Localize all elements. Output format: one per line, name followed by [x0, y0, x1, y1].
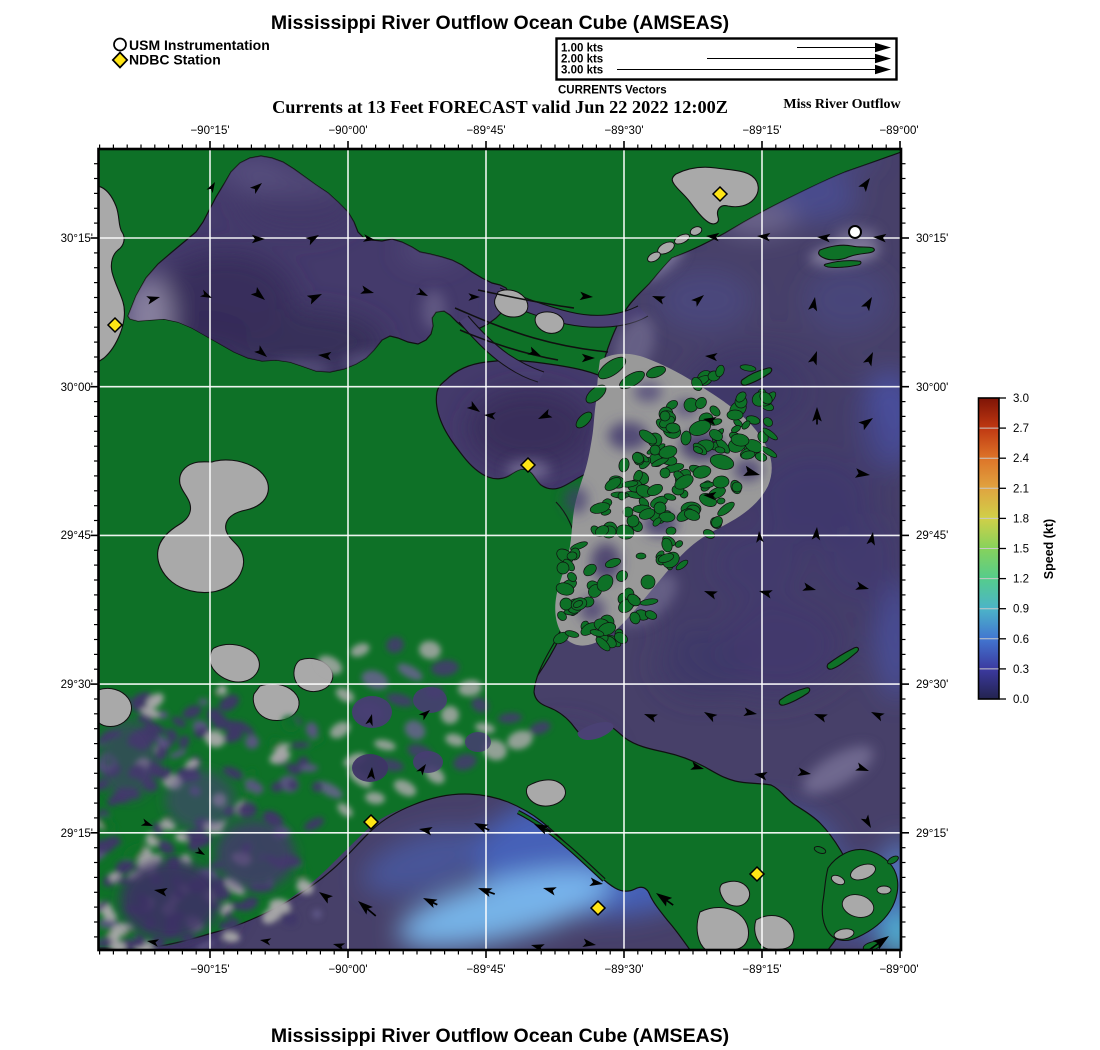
svg-text:0.0: 0.0	[1013, 694, 1029, 706]
svg-text:−89°15': −89°15'	[742, 125, 781, 137]
svg-text:CURRENTS Vectors: CURRENTS Vectors	[558, 85, 667, 97]
svg-text:30°15': 30°15'	[916, 233, 948, 245]
svg-text:30°15': 30°15'	[61, 233, 93, 245]
svg-text:−89°00': −89°00'	[879, 125, 918, 137]
svg-text:29°30': 29°30'	[61, 679, 93, 691]
svg-text:Currents at 13 Feet FORECAST v: Currents at 13 Feet FORECAST valid Jun 2…	[272, 97, 728, 117]
svg-text:Mississippi River Outflow Ocea: Mississippi River Outflow Ocean Cube (AM…	[271, 1025, 729, 1047]
svg-text:−90°00': −90°00'	[328, 125, 367, 137]
svg-text:−89°45': −89°45'	[466, 125, 505, 137]
svg-text:30°00': 30°00'	[61, 382, 93, 394]
svg-text:−89°30': −89°30'	[604, 964, 643, 976]
svg-text:1.5: 1.5	[1013, 544, 1029, 556]
svg-text:0.9: 0.9	[1013, 604, 1029, 616]
svg-text:Miss River Outflow: Miss River Outflow	[783, 97, 901, 112]
svg-text:−89°30': −89°30'	[604, 125, 643, 137]
svg-text:−90°15': −90°15'	[190, 125, 229, 137]
svg-text:−90°00': −90°00'	[328, 964, 367, 976]
svg-text:29°45': 29°45'	[61, 530, 93, 542]
svg-text:30°00': 30°00'	[916, 382, 948, 394]
svg-text:−89°45': −89°45'	[466, 964, 505, 976]
svg-text:2.1: 2.1	[1013, 483, 1029, 495]
svg-text:NDBC Station: NDBC Station	[129, 52, 221, 68]
svg-text:−89°15': −89°15'	[742, 964, 781, 976]
svg-text:Speed (kt): Speed (kt)	[1042, 519, 1056, 579]
svg-text:1.8: 1.8	[1013, 513, 1029, 525]
svg-text:29°15': 29°15'	[61, 828, 93, 840]
svg-text:0.3: 0.3	[1013, 664, 1029, 676]
svg-text:2.4: 2.4	[1013, 453, 1030, 465]
svg-text:−89°00': −89°00'	[879, 964, 918, 976]
svg-text:0.6: 0.6	[1013, 634, 1029, 646]
svg-text:Mississippi River Outflow Ocea: Mississippi River Outflow Ocean Cube (AM…	[271, 12, 729, 34]
svg-text:2.7: 2.7	[1013, 423, 1029, 435]
svg-text:29°30': 29°30'	[916, 679, 948, 691]
svg-text:3.0: 3.0	[1013, 393, 1029, 405]
svg-text:1.2: 1.2	[1013, 574, 1029, 586]
svg-text:29°45': 29°45'	[916, 530, 948, 542]
svg-text:29°15': 29°15'	[916, 828, 948, 840]
svg-text:3.00 kts: 3.00 kts	[561, 65, 603, 77]
svg-text:−90°15': −90°15'	[190, 964, 229, 976]
